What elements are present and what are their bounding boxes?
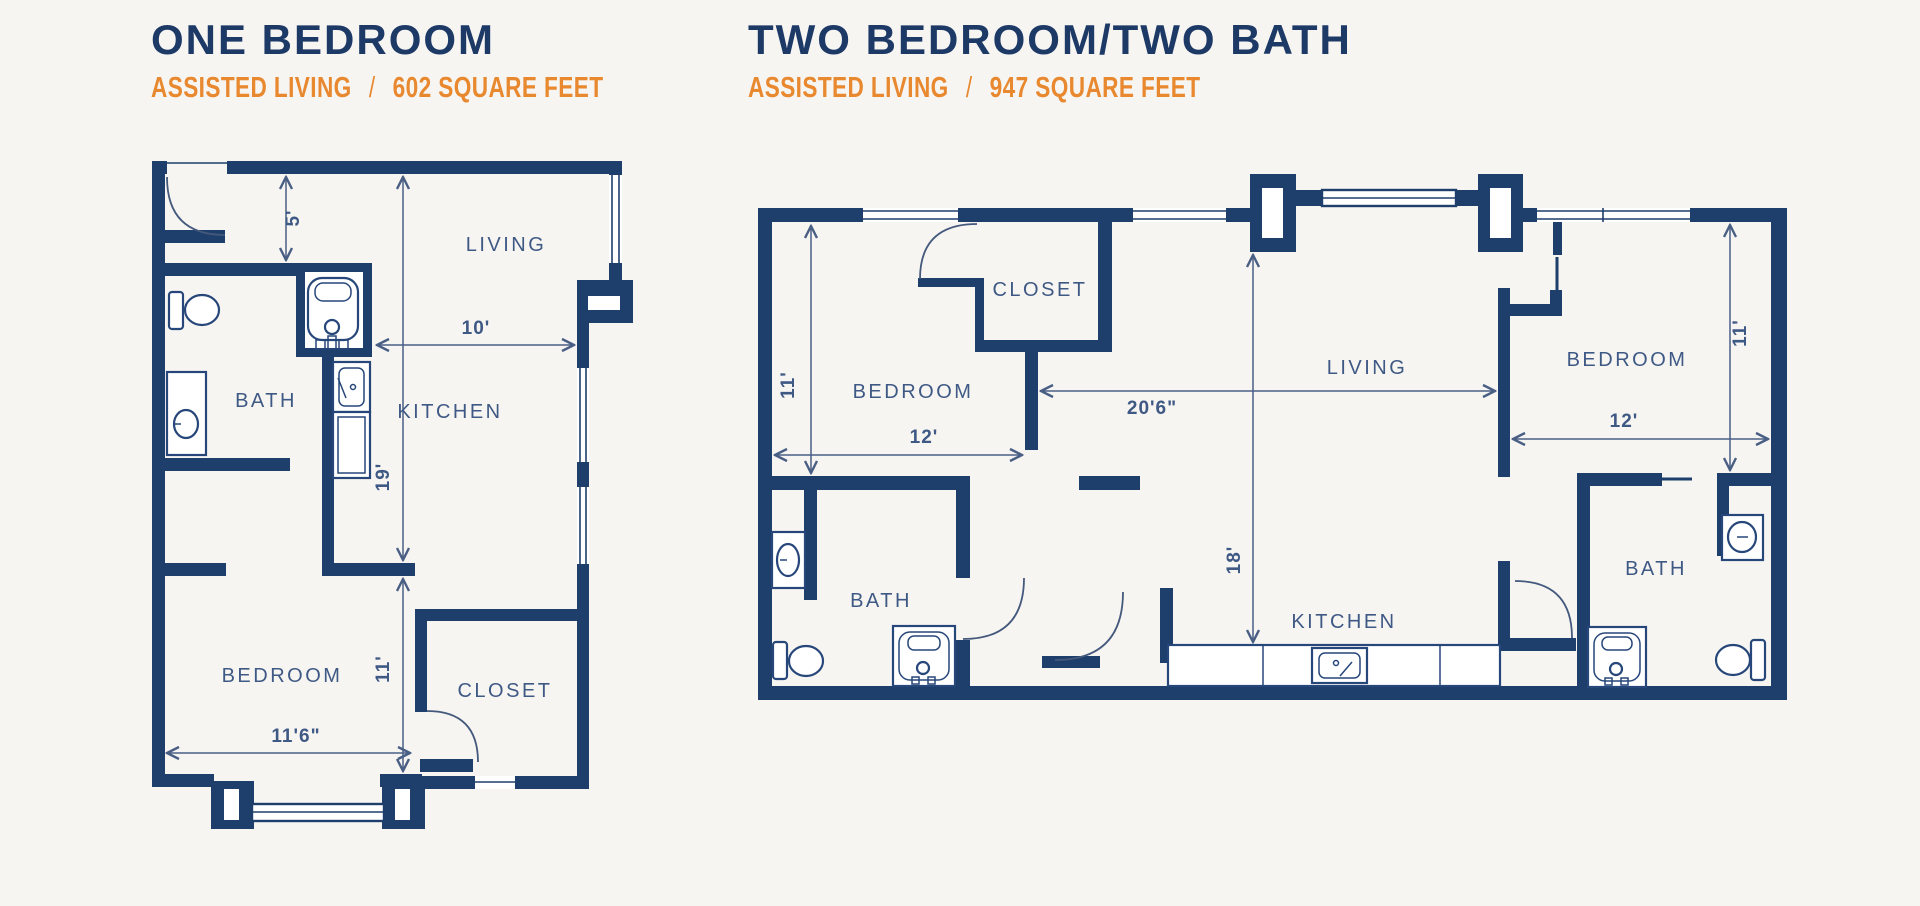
hall-door-arc (1055, 592, 1123, 660)
two-bedroom-fixtures (772, 515, 1765, 687)
room-label-kitchen: KITCHEN (1291, 611, 1396, 633)
plan-two-bedroom: 11' 12' 20'6" 18' 11' 12' BEDROOM CLOSET… (758, 174, 1787, 700)
room-label-bedroom-left: BEDROOM (853, 381, 974, 403)
room-label-bedroom-right: BEDROOM (1567, 349, 1688, 371)
floor-plans-drawing: 5' 10' 19' 11' 11'6" LIVING KITCHEN BATH… (0, 0, 1920, 906)
room-label-bath-right: BATH (1625, 558, 1687, 580)
dim-bedroom-right-width: 12' (1610, 411, 1639, 432)
toilet-icon (773, 642, 823, 679)
toilet-icon (169, 292, 219, 329)
one-bedroom-walls (152, 161, 633, 829)
dim-bedroom-left-width: 12' (910, 427, 939, 448)
kitchen-sink-icon (1312, 648, 1367, 683)
bathtub-icon (296, 263, 372, 357)
one-bedroom-fixtures (167, 263, 372, 478)
dim-living-width: 20'6" (1127, 398, 1177, 419)
bathroom-sink-icon (167, 372, 206, 455)
room-label-bedroom: BEDROOM (222, 665, 343, 687)
kitchen-sink-icon (333, 362, 370, 412)
room-label-bath-left: BATH (850, 590, 912, 612)
dim-bedroom-depth: 11' (373, 655, 394, 683)
plan-one-bedroom: 5' 10' 19' 11' 11'6" LIVING KITCHEN BATH… (152, 161, 633, 829)
room-label-living: LIVING (1327, 357, 1408, 379)
dim-bedroom-width: 11'6" (271, 726, 320, 747)
bathtub-icon (1588, 627, 1646, 687)
two-bedroom-dimensions: 11' 12' 20'6" 18' 11' 12' (775, 225, 1768, 642)
bath-left-door-arc (963, 578, 1024, 639)
room-label-living: LIVING (466, 234, 547, 256)
dim-kitchen-width: 10' (462, 318, 491, 339)
room-label-closet: CLOSET (457, 680, 552, 702)
dim-bedroom-right-depth: 11' (1730, 319, 1751, 347)
kitchen-cabinet-icon (333, 412, 370, 478)
room-label-closet: CLOSET (992, 279, 1087, 301)
dim-bedroom-left-depth: 11' (778, 371, 799, 399)
floor-plan-sheet: ONE BEDROOM ASSISTED LIVING/602 SQUARE F… (0, 0, 1920, 906)
closet-door-arc (427, 711, 478, 762)
dim-entry-depth: 5' (283, 209, 304, 226)
bathroom-sink-icon (1722, 515, 1763, 560)
bathtub-icon (893, 626, 955, 686)
hall2-door-arc (1515, 581, 1572, 638)
closet-door-arc (920, 224, 977, 279)
dim-main-depth: 19' (373, 463, 394, 492)
room-label-bath: BATH (235, 390, 297, 412)
entry-door-arc (167, 177, 225, 235)
dim-living-depth: 18' (1224, 546, 1245, 575)
room-label-kitchen: KITCHEN (397, 401, 502, 423)
toilet-icon (1716, 640, 1765, 680)
bathroom-sink-icon (772, 532, 805, 588)
